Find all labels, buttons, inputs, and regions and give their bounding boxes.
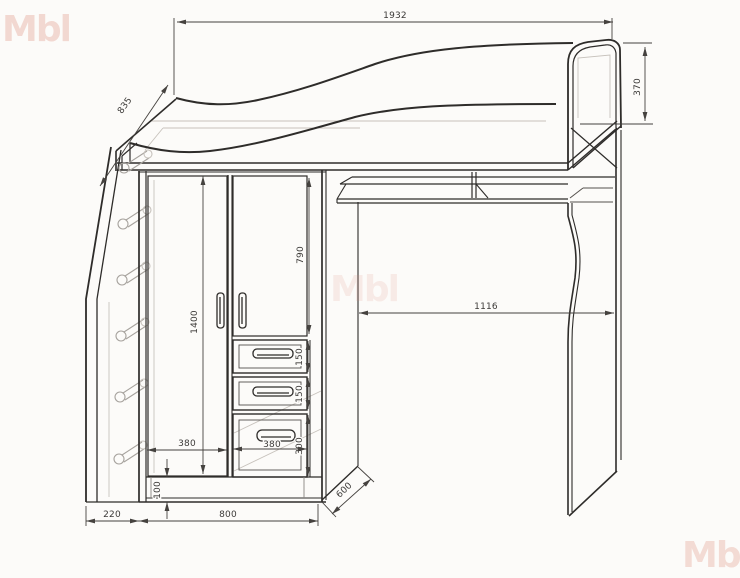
dim-bed-length: 1932 <box>174 11 613 95</box>
dim-label-headboard-height: 370 <box>633 78 643 96</box>
back-rail-wave <box>176 43 573 104</box>
dim-label-drawer-width: 380 <box>263 440 281 450</box>
dim-wardrobe-width: 800 <box>139 504 318 526</box>
furniture-technical-drawing: 1932 370 835 1400 790 150 15 <box>0 0 740 578</box>
plinth <box>139 477 326 502</box>
dim-label-wardrobe-interior-height: 1400 <box>190 310 200 334</box>
dim-label-wardrobe-width: 800 <box>219 510 237 520</box>
dim-label-door-height: 790 <box>296 246 306 264</box>
dim-label-unit-depth: 600 <box>335 481 355 500</box>
wardrobe-door-left <box>148 176 227 476</box>
bed-frame <box>116 43 617 171</box>
faint-perspective-lines <box>109 55 610 497</box>
dim-door-width: 380 <box>147 439 227 450</box>
dim-drawer-heights: 150 150 300 <box>295 341 308 476</box>
dim-label-ladder-offset: 220 <box>103 510 121 520</box>
ladder-rung <box>114 441 147 464</box>
ladder-rung <box>115 379 148 402</box>
dim-label-plinth-height: 100 <box>153 481 163 499</box>
dim-label-bed-depth: 835 <box>116 96 134 116</box>
dim-label-bed-length: 1932 <box>383 11 407 21</box>
door-handle <box>239 293 246 328</box>
right-shelf <box>570 188 613 202</box>
dim-bed-depth: 835 <box>100 85 168 186</box>
dim-label-drawer-2: 150 <box>295 385 305 403</box>
dim-label-drawer-3: 300 <box>295 437 305 455</box>
ladder-rung <box>117 262 150 285</box>
dim-ladder-offset: 220 <box>86 506 139 526</box>
loft-bed-drawing-svg: 1932 370 835 1400 790 150 15 <box>0 0 740 578</box>
dim-label-drawer-1: 150 <box>295 348 305 366</box>
dim-label-door-width: 380 <box>178 439 196 449</box>
shelf-divider <box>472 172 488 198</box>
drawer-handle <box>253 349 293 358</box>
ladder-rung <box>116 318 149 341</box>
headboard-panel <box>568 40 621 170</box>
dim-desk-opening-width: 1116 <box>359 302 614 313</box>
dim-wardrobe-interior-height: 1400 <box>190 176 203 474</box>
dim-label-desk-opening-width: 1116 <box>474 302 498 312</box>
door-handle <box>217 293 224 328</box>
desk <box>322 172 615 515</box>
drawer-handle <box>253 387 293 396</box>
dim-plinth-height: 100 <box>153 459 167 519</box>
ladder <box>86 147 152 502</box>
